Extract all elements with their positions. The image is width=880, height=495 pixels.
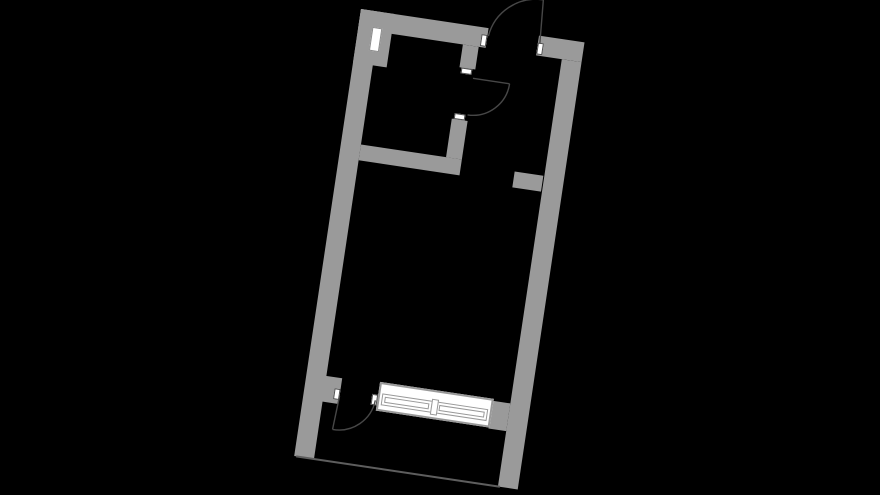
bathroom-door-leaf	[473, 78, 510, 83]
balcony-door-leaf	[333, 396, 340, 430]
bathroom-door-arc	[468, 78, 510, 120]
door-swing-layer	[219, 0, 618, 495]
entry-door-leaf	[537, 0, 546, 44]
balcony-door-swing	[333, 395, 376, 435]
bathroom-door-swing	[468, 78, 510, 120]
floorplan	[294, 9, 585, 492]
entry-door-arc	[488, 0, 543, 43]
floorplan-canvas	[0, 0, 880, 495]
entry-door-swing	[488, 0, 546, 44]
